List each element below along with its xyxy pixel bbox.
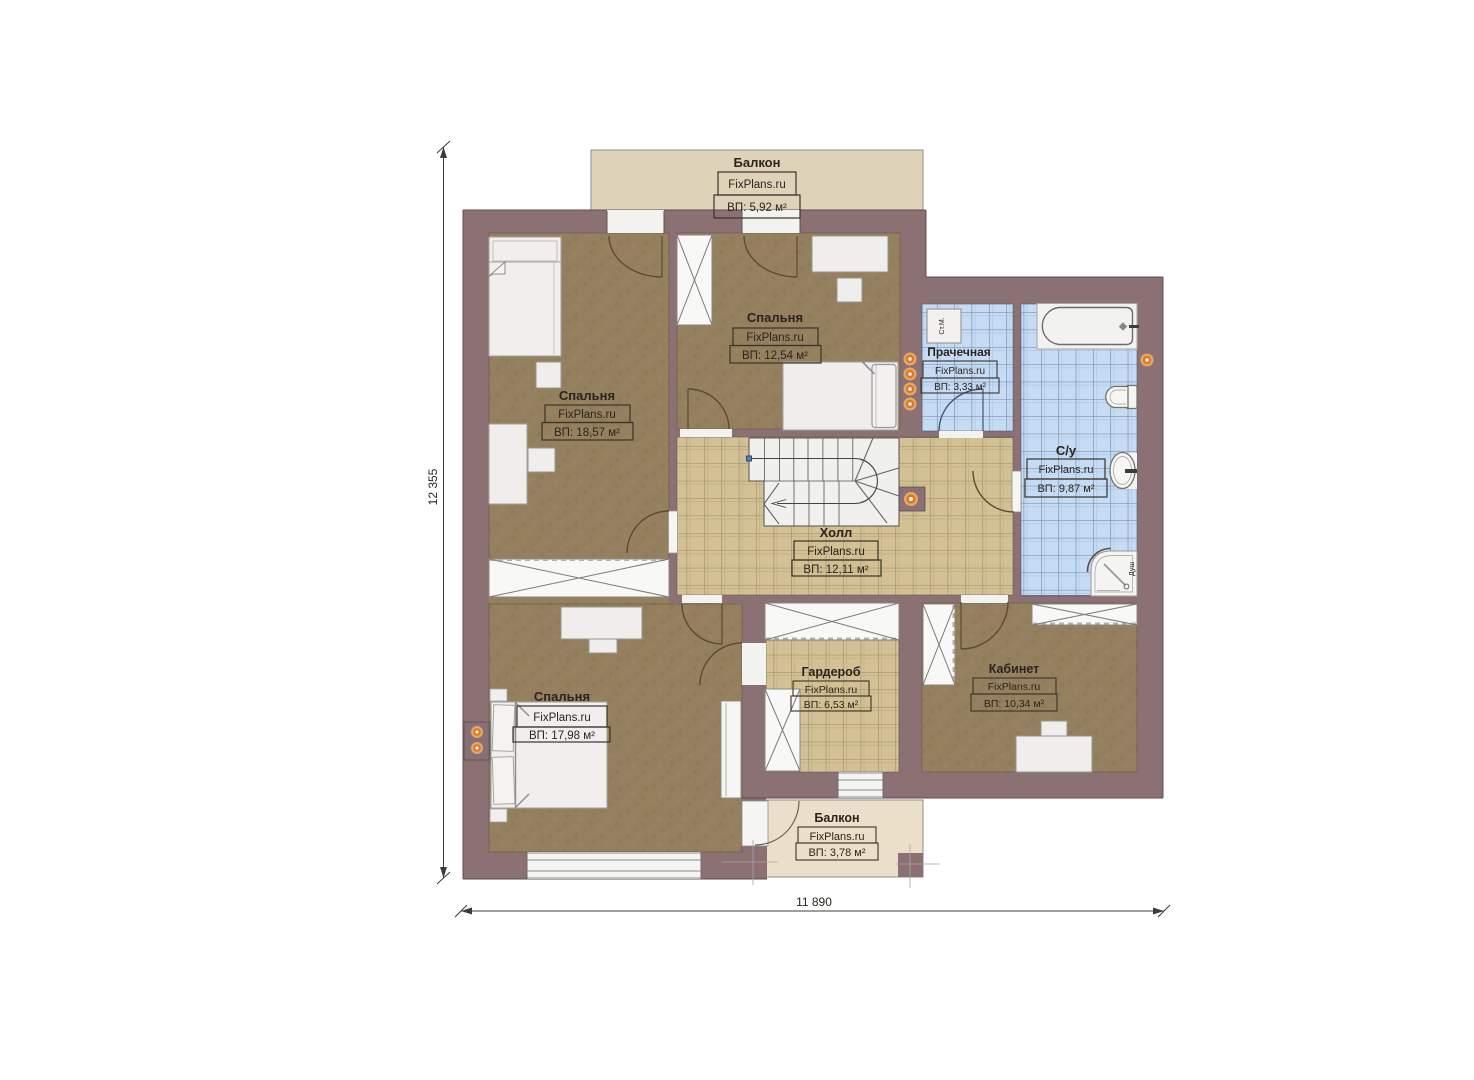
svg-text:Спальня: Спальня [559,388,615,403]
svg-text:FixPlans.ru: FixPlans.ru [558,409,616,421]
svg-text:11 890: 11 890 [796,895,832,909]
svg-text:ВП: 3,78 м²: ВП: 3,78 м² [808,847,865,859]
svg-text:Холл: Холл [820,525,853,540]
svg-text:FixPlans.ru: FixPlans.ru [807,546,865,558]
svg-text:FixPlans.ru: FixPlans.ru [988,681,1041,693]
svg-text:ВП: 12,54 м²: ВП: 12,54 м² [742,350,808,362]
svg-text:Спальня: Спальня [747,310,803,325]
svg-text:FixPlans.ru: FixPlans.ru [935,366,985,377]
svg-text:Кабинет: Кабинет [989,662,1040,676]
svg-text:ВП: 17,98 м²: ВП: 17,98 м² [529,730,595,742]
svg-text:ВП: 6,53 м²: ВП: 6,53 м² [804,699,859,711]
svg-text:ВП: 5,92 м²: ВП: 5,92 м² [727,202,787,214]
svg-text:Спальня: Спальня [534,689,590,704]
svg-text:FixPlans.ru: FixPlans.ru [746,332,804,344]
svg-text:Душ: Душ [1129,562,1136,576]
svg-text:Балкон: Балкон [734,155,781,170]
svg-text:Прачечная: Прачечная [927,345,991,359]
svg-text:ВП: 3,33 м²: ВП: 3,33 м² [934,382,987,393]
svg-text:Балкон: Балкон [814,811,859,825]
svg-text:Гардероб: Гардероб [801,665,860,679]
svg-text:FixPlans.ru: FixPlans.ru [809,831,864,843]
svg-text:FixPlans.ru: FixPlans.ru [533,712,591,724]
svg-text:12 355: 12 355 [426,468,440,505]
svg-text:FixPlans.ru: FixPlans.ru [1038,464,1093,476]
svg-text:ВП: 18,57 м²: ВП: 18,57 м² [554,427,620,439]
svg-text:ВП: 10,34 м²: ВП: 10,34 м² [984,698,1045,710]
svg-text:FixPlans.ru: FixPlans.ru [805,684,858,696]
svg-text:FixPlans.ru: FixPlans.ru [728,179,786,191]
svg-text:ВП: 12,11 м²: ВП: 12,11 м² [803,564,868,576]
svg-text:С/у: С/у [1056,443,1077,458]
svg-text:ВП: 9,87 м²: ВП: 9,87 м² [1037,483,1094,495]
svg-text:Ст.М.: Ст.М. [939,317,946,334]
